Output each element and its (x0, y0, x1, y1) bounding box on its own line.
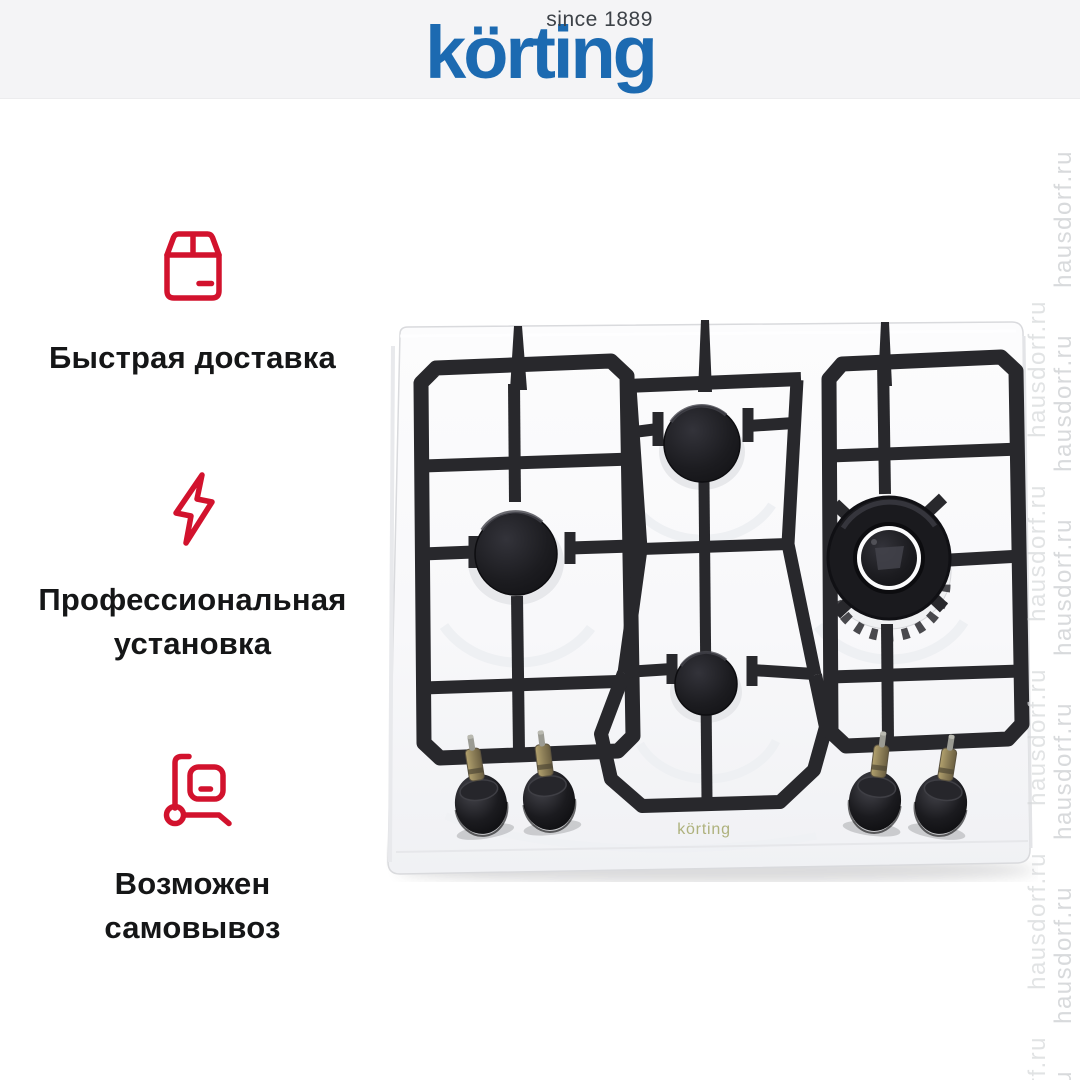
lightning-icon (166, 470, 220, 548)
feature-text: Профессиональная (38, 578, 346, 622)
watermark-text: hausdorf.ru (1050, 1070, 1078, 1080)
gas-hob-illustration: körting (386, 296, 1038, 882)
product-image: körting (386, 296, 1038, 882)
watermark-text: hausdorf.ru (1024, 852, 1052, 990)
watermark-text: hausdorf.ru (1024, 300, 1052, 438)
feature-professional-installation: Профессиональная установка (0, 470, 385, 666)
package-box-icon (154, 228, 232, 306)
feature-text: Быстрая доставка (49, 336, 336, 380)
brand-tagline: since 1889 (546, 8, 653, 32)
features-list: Быстрая доставка Профессиональная устано… (0, 0, 385, 1080)
hob-brand-engraving: körting (677, 821, 731, 838)
burner-wok (828, 497, 950, 619)
watermark-text: hausdorf.ru (1024, 484, 1052, 622)
feature-text: установка (38, 622, 346, 666)
watermark-text: hausdorf.ru (1050, 518, 1078, 656)
watermark-text: hausdorf.ru (1024, 1036, 1052, 1080)
watermark-text: hausdorf.ru (1050, 334, 1078, 472)
feature-label: Возможен самовывоз (104, 862, 280, 950)
feature-text: Возможен (104, 862, 280, 906)
watermark-text: hausdorf.ru (1050, 886, 1078, 1024)
feature-label: Быстрая доставка (49, 336, 336, 380)
watermark-column: hausdorf.ruhausdorf.ruhausdorf.ruhausdor… (1050, 150, 1078, 1080)
feature-fast-delivery: Быстрая доставка (0, 228, 385, 380)
feature-text: самовывоз (104, 906, 280, 950)
brand-logo: since 1889 körting (425, 6, 655, 90)
watermark-text: hausdorf.ru (1050, 702, 1078, 840)
page: since 1889 körting Быстрая доставка Проф… (0, 0, 1080, 1080)
watermark-text: hausdorf.ru (1050, 150, 1078, 288)
feature-label: Профессиональная установка (38, 578, 346, 666)
watermark-column: hausdorf.ruhausdorf.ruhausdorf.ruhausdor… (1024, 300, 1052, 1080)
hand-truck-icon (149, 748, 237, 832)
feature-pickup-available: Возможен самовывоз (0, 748, 385, 950)
watermark-text: hausdorf.ru (1024, 668, 1052, 806)
